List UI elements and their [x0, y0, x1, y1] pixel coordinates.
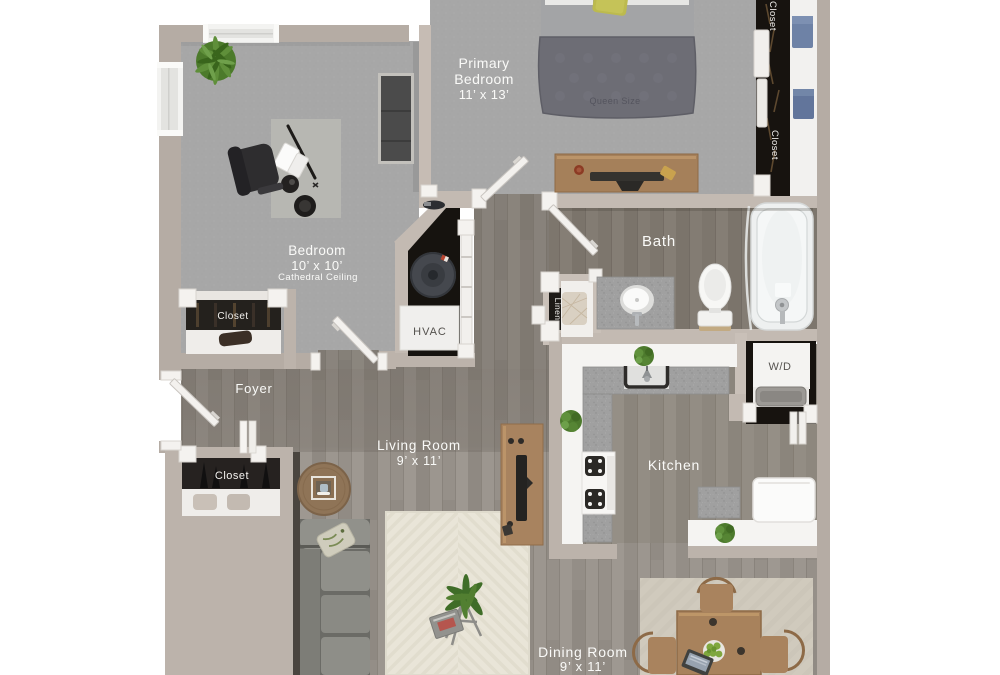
- svg-text:Bedroom: Bedroom: [288, 243, 346, 258]
- svg-text:Foyer: Foyer: [235, 381, 272, 396]
- svg-text:9’ x 11’: 9’ x 11’: [397, 454, 442, 468]
- svg-text:9’ x 11’: 9’ x 11’: [560, 659, 606, 674]
- svg-text:Closet: Closet: [215, 470, 249, 482]
- svg-text:Bath: Bath: [642, 233, 676, 250]
- svg-text:Closet: Closet: [767, 1, 778, 31]
- svg-text:Linen: Linen: [553, 298, 563, 321]
- svg-text:W/D: W/D: [769, 361, 792, 373]
- svg-text:Dining Room: Dining Room: [538, 644, 628, 660]
- svg-text:Cathedral Ceiling: Cathedral Ceiling: [278, 272, 358, 283]
- svg-text:Kitchen: Kitchen: [648, 457, 700, 473]
- svg-text:HVAC: HVAC: [413, 326, 447, 338]
- svg-text:10’ x 10’: 10’ x 10’: [291, 258, 343, 273]
- svg-text:Primary: Primary: [458, 55, 509, 71]
- svg-text:Queen Size: Queen Size: [589, 96, 640, 106]
- svg-text:Closet: Closet: [217, 311, 248, 322]
- svg-text:Closet: Closet: [769, 130, 780, 160]
- svg-text:11’ x 13’: 11’ x 13’: [459, 87, 510, 102]
- svg-text:Living Room: Living Room: [377, 438, 461, 453]
- svg-text:Bedroom: Bedroom: [454, 71, 514, 87]
